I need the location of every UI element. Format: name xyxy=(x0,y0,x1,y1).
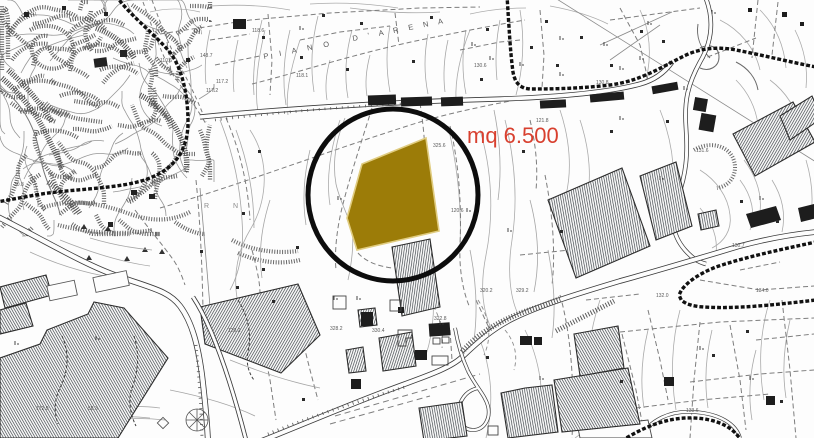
svg-text:330.4: 330.4 xyxy=(372,328,385,334)
svg-text:120.2: 120.2 xyxy=(228,328,241,334)
svg-text:134.0: 134.0 xyxy=(756,288,769,294)
svg-text:118.6: 118.6 xyxy=(252,28,264,34)
svg-text:117.2: 117.2 xyxy=(216,79,228,85)
svg-text:130.8: 130.8 xyxy=(596,80,609,86)
svg-text:148.7: 148.7 xyxy=(200,53,213,59)
svg-text:320.2: 320.2 xyxy=(480,288,493,294)
svg-text:30.8: 30.8 xyxy=(14,182,24,188)
svg-text:325.6: 325.6 xyxy=(433,143,446,149)
svg-text:131.6: 131.6 xyxy=(696,148,709,154)
svg-text:132.0: 132.0 xyxy=(656,293,669,299)
svg-text:120.6: 120.6 xyxy=(451,208,464,214)
svg-text:172.9: 172.9 xyxy=(36,406,49,412)
svg-text:328.2: 328.2 xyxy=(330,326,343,332)
svg-text:322.8: 322.8 xyxy=(434,316,447,322)
svg-text:R N: R N xyxy=(204,203,249,210)
svg-text:58.3: 58.3 xyxy=(88,406,98,412)
svg-text:133.6: 133.6 xyxy=(686,408,699,414)
svg-text:329.2: 329.2 xyxy=(516,288,529,294)
svg-text:130.6: 130.6 xyxy=(474,63,487,69)
svg-text:130.7: 130.7 xyxy=(732,243,745,249)
svg-text:118.1: 118.1 xyxy=(296,73,308,79)
svg-text:117.2: 117.2 xyxy=(206,88,218,94)
svg-text:mq 6.500: mq 6.500 xyxy=(467,123,559,148)
svg-text:110.6: 110.6 xyxy=(160,58,172,64)
